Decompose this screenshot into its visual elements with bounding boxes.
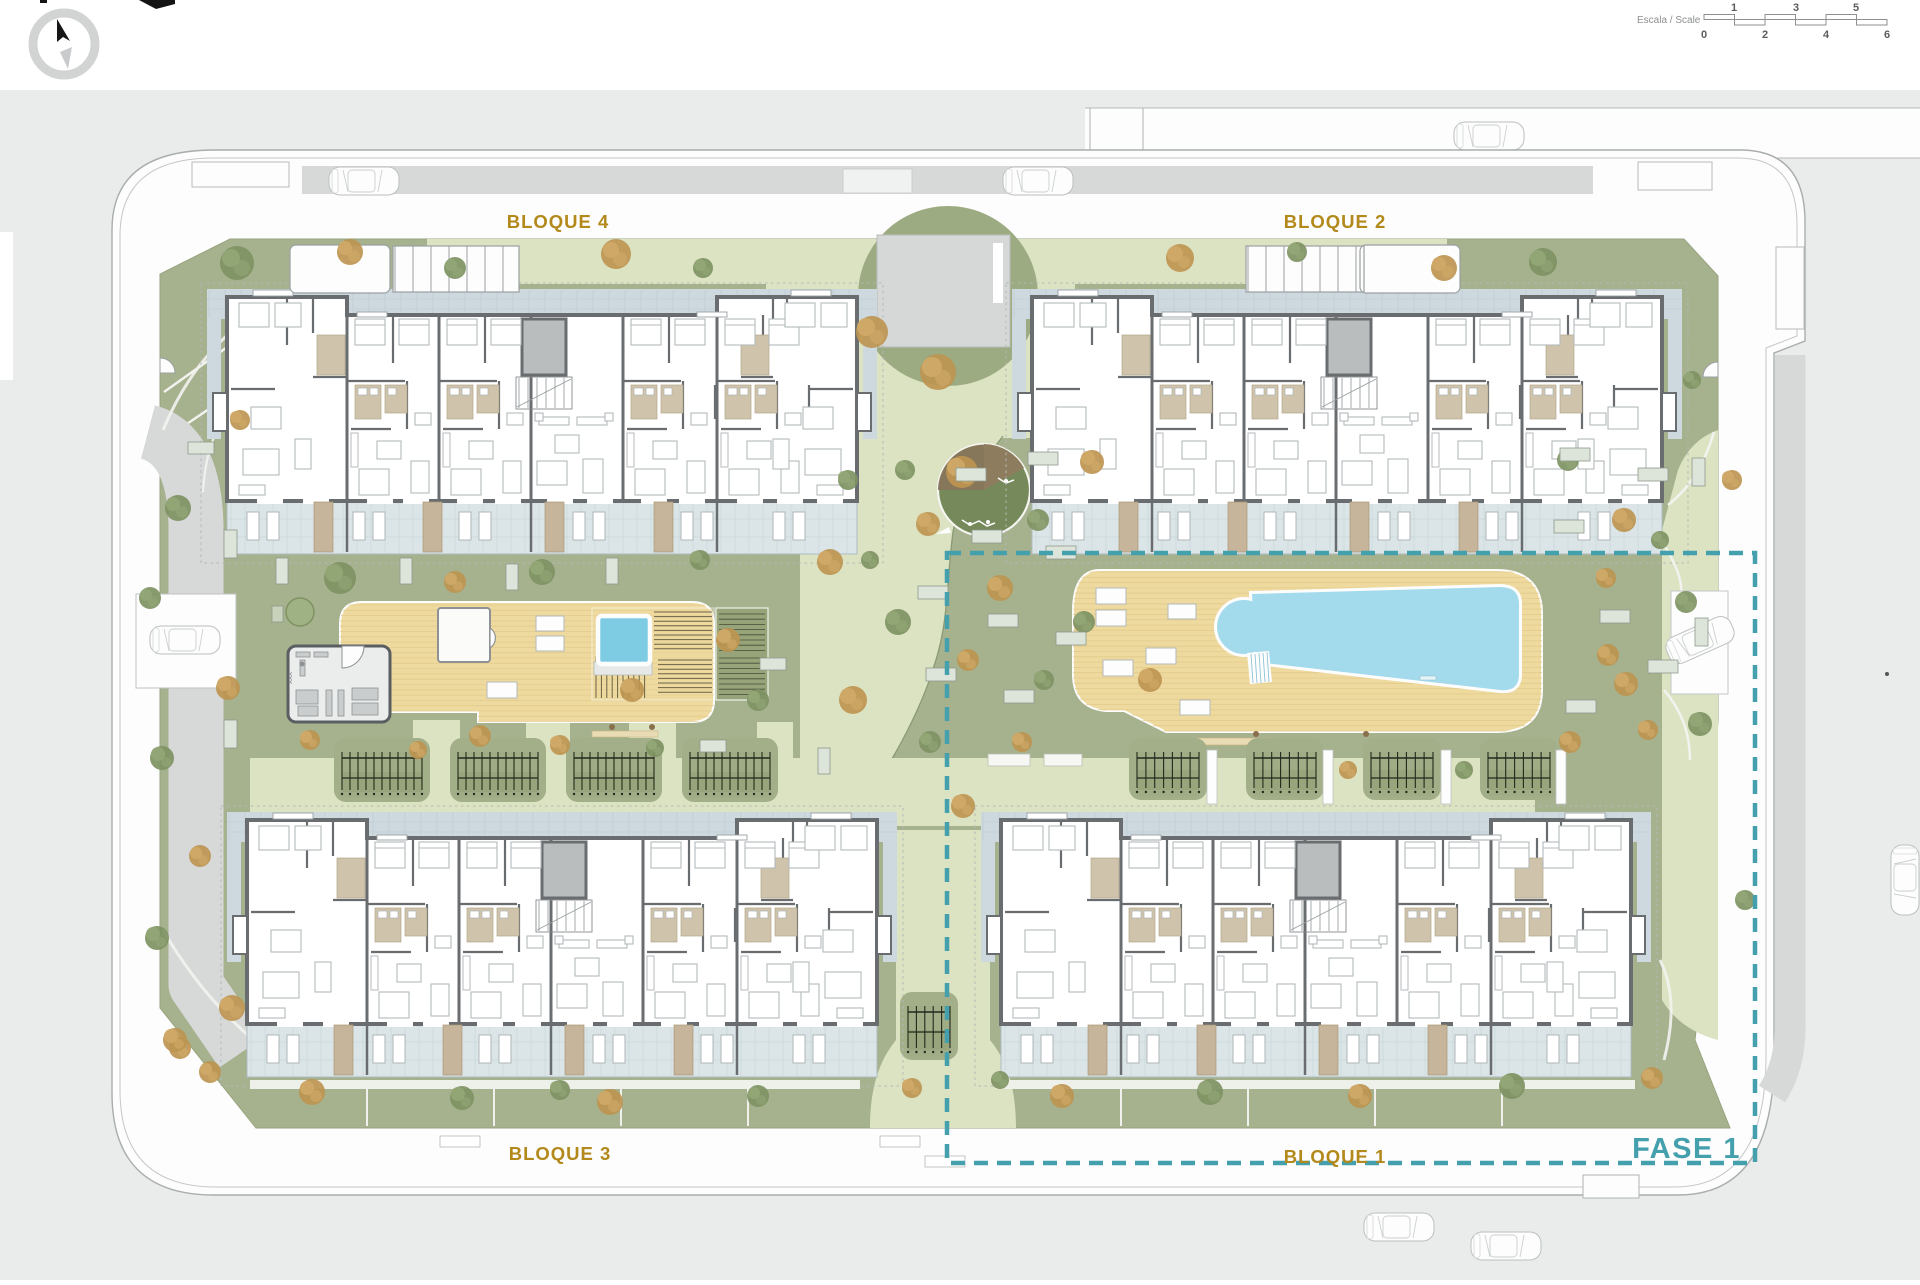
svg-text:4: 4 xyxy=(1823,29,1830,41)
svg-text:6: 6 xyxy=(1884,29,1890,41)
svg-text:BLOQUE 3: BLOQUE 3 xyxy=(509,1143,612,1164)
svg-text:BLOQUE 4: BLOQUE 4 xyxy=(507,211,610,232)
svg-text:Escala / Scale: Escala / Scale xyxy=(1637,15,1701,26)
svg-text:XXX: XXX xyxy=(288,672,294,684)
svg-text:1: 1 xyxy=(1731,2,1737,14)
svg-text:2: 2 xyxy=(1762,29,1768,41)
svg-text:0: 0 xyxy=(1701,29,1707,41)
svg-text:BLOQUE 2: BLOQUE 2 xyxy=(1284,211,1387,232)
svg-text:5: 5 xyxy=(1853,2,1859,14)
svg-text:BLOQUE 1: BLOQUE 1 xyxy=(1284,1146,1387,1167)
svg-text:3: 3 xyxy=(1793,2,1799,14)
svg-text:FASE 1: FASE 1 xyxy=(1632,1133,1741,1165)
